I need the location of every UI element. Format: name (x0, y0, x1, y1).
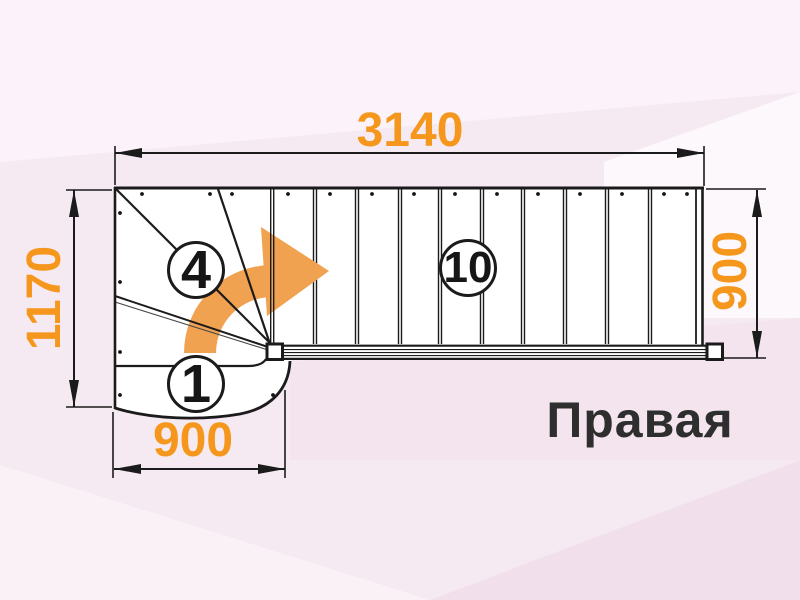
step-number: 10 (444, 243, 493, 293)
orientation-label: Правая (546, 391, 733, 449)
step-number: 1 (181, 353, 211, 415)
dimension-total-length: 3140 (357, 107, 464, 155)
staircase-drawing (0, 0, 800, 600)
dimension-left (66, 190, 112, 407)
dimension-right-height: 900 (707, 231, 755, 311)
staircase-plan-canvas: 3140 1170 900 900 4 1 10 Правая (0, 0, 800, 600)
step-badge-4: 4 (167, 241, 225, 299)
dimension-bottom-width: 900 (153, 417, 233, 465)
step-number: 4 (181, 239, 211, 301)
dimension-left-height: 1170 (21, 246, 69, 350)
step-badge-10: 10 (439, 239, 497, 297)
step-badge-1: 1 (167, 355, 225, 413)
